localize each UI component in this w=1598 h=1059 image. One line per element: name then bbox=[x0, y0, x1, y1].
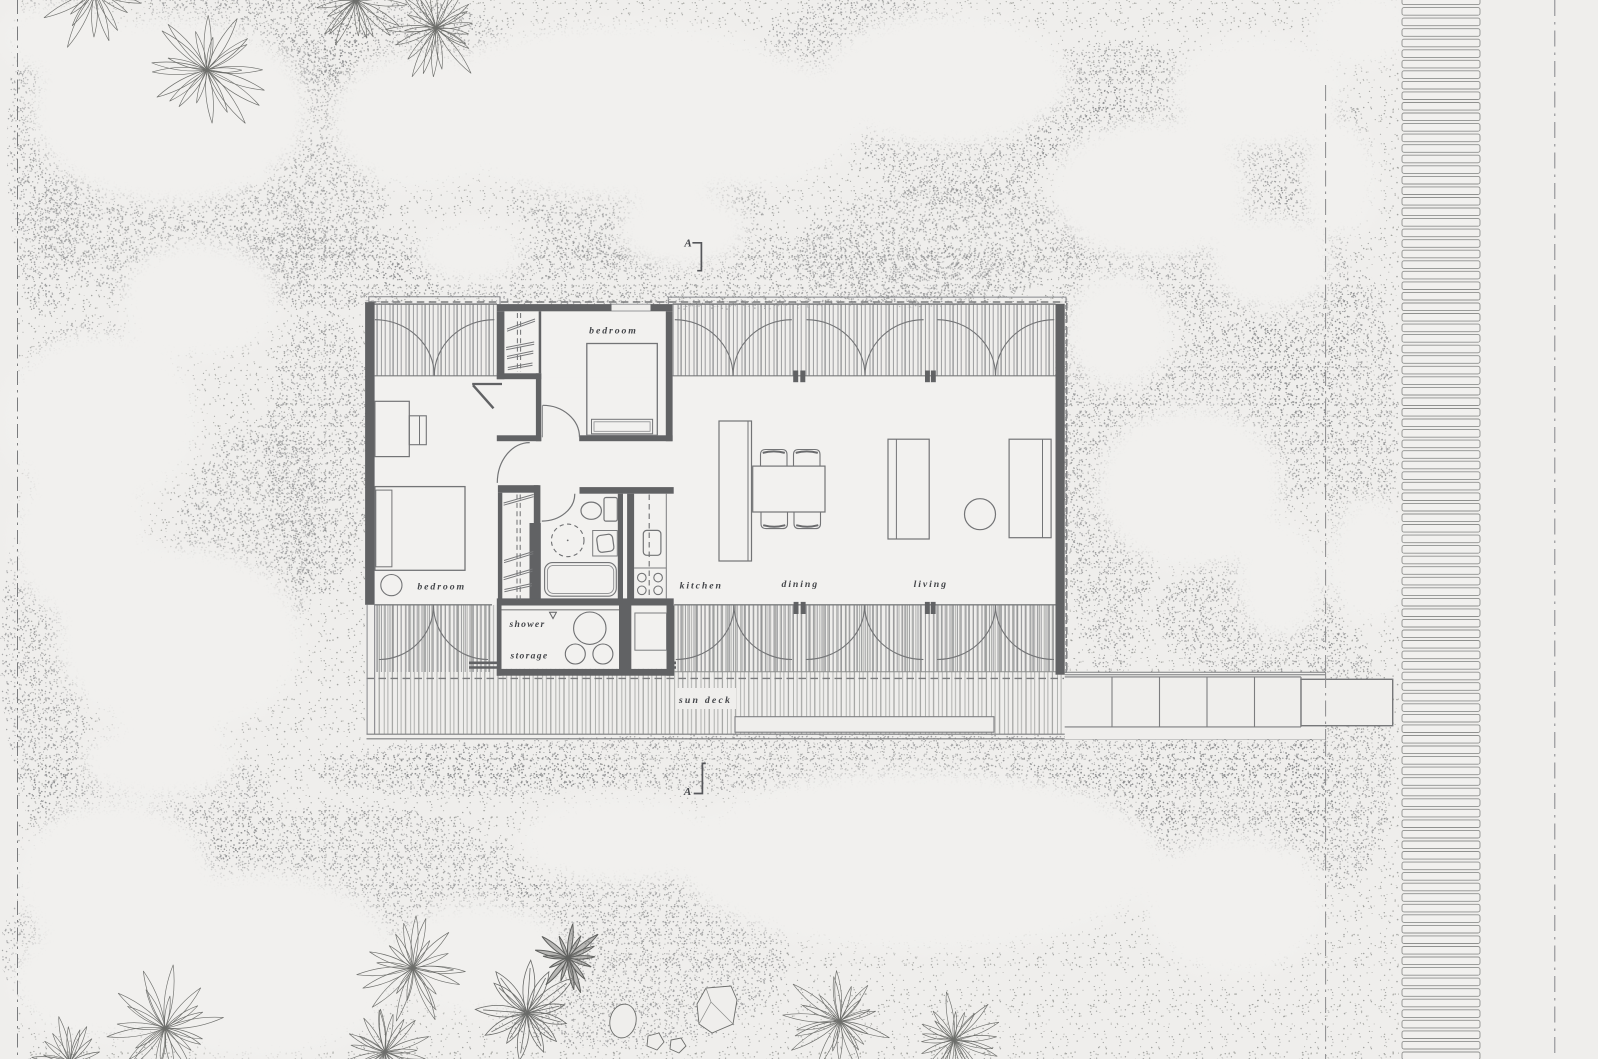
svg-text:bedroom: bedroom bbox=[417, 581, 466, 592]
svg-text:kitchen: kitchen bbox=[680, 580, 723, 591]
svg-text:bedroom: bedroom bbox=[589, 326, 638, 337]
svg-text:shower: shower bbox=[508, 619, 545, 630]
svg-text:A: A bbox=[683, 238, 691, 250]
svg-text:living: living bbox=[914, 579, 948, 590]
svg-text:sun deck: sun deck bbox=[678, 695, 732, 706]
svg-text:dining: dining bbox=[782, 579, 820, 590]
svg-text:storage: storage bbox=[510, 650, 549, 661]
svg-text:A: A bbox=[683, 786, 691, 798]
